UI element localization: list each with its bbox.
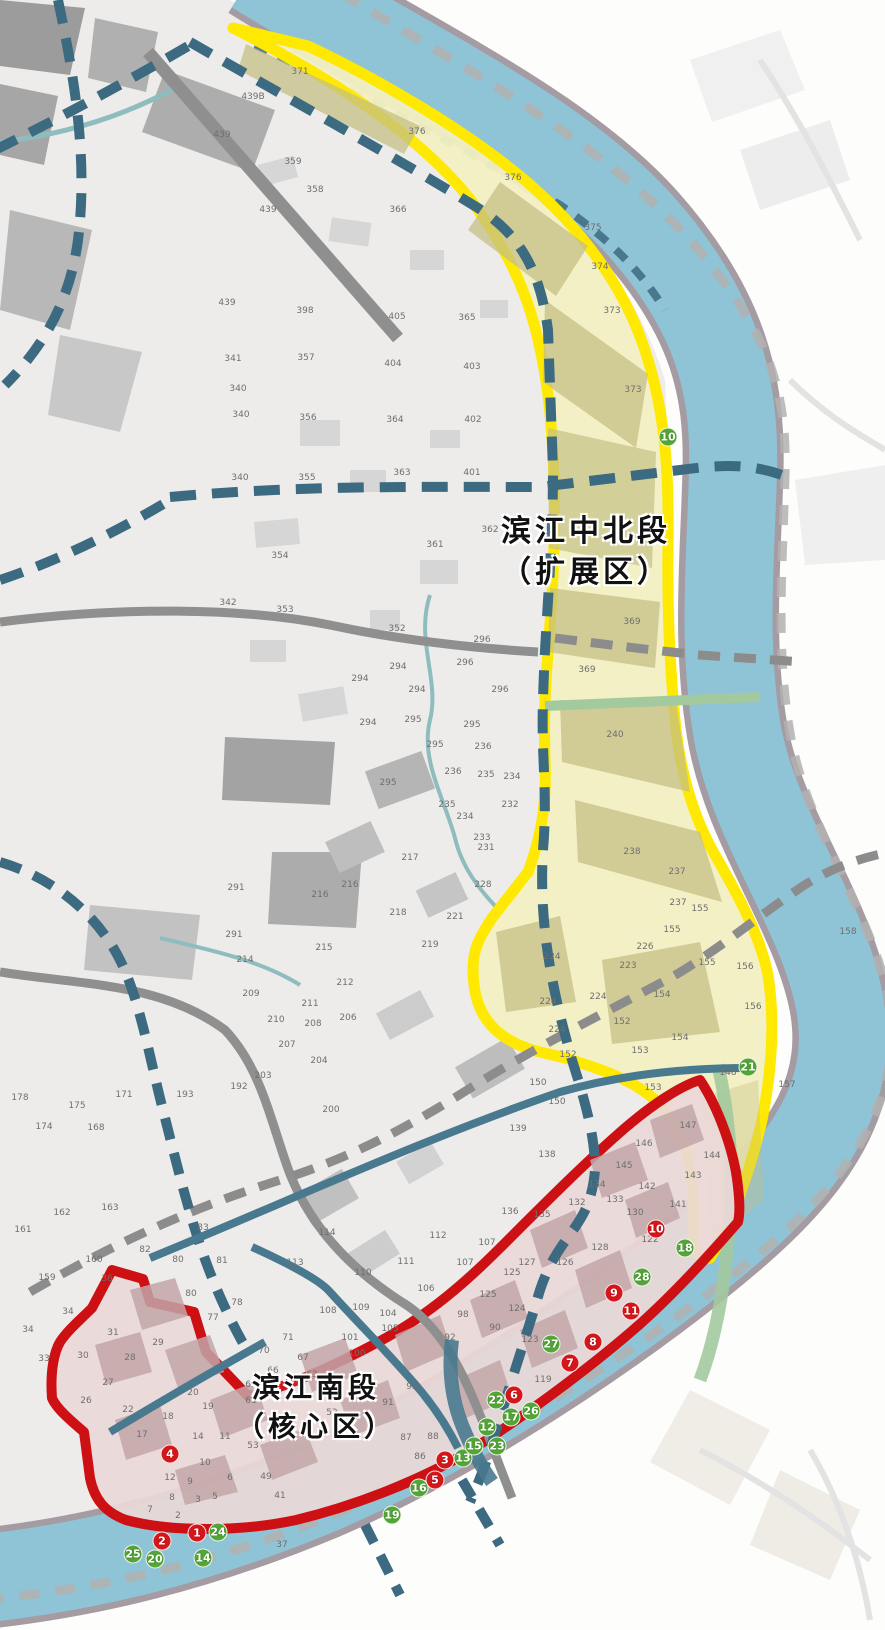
marker-green-17[interactable]: 17 [502,1408,521,1427]
markers-layer: 1234567891011101213141516171819202122232… [0,0,885,1630]
marker-red-8[interactable]: 8 [584,1333,603,1352]
marker-green-25[interactable]: 25 [124,1545,143,1564]
marker-green-23[interactable]: 23 [488,1437,507,1456]
marker-green-21[interactable]: 21 [739,1058,758,1077]
marker-red-2[interactable]: 2 [153,1532,172,1551]
marker-green-15[interactable]: 15 [465,1437,484,1456]
marker-red-1[interactable]: 1 [188,1524,207,1543]
marker-green-28[interactable]: 28 [633,1268,652,1287]
marker-red-7[interactable]: 7 [561,1354,580,1373]
marker-green-10[interactable]: 10 [659,428,678,447]
marker-red-11[interactable]: 11 [622,1302,641,1321]
marker-green-24[interactable]: 24 [209,1523,228,1542]
marker-red-10[interactable]: 10 [647,1220,666,1239]
marker-red-3[interactable]: 3 [436,1451,455,1470]
marker-green-27[interactable]: 27 [542,1335,561,1354]
marker-red-9[interactable]: 9 [605,1284,624,1303]
marker-green-19[interactable]: 19 [383,1506,402,1525]
marker-green-18[interactable]: 18 [676,1239,695,1258]
marker-green-22[interactable]: 22 [487,1391,506,1410]
marker-red-4[interactable]: 4 [161,1445,180,1464]
marker-red-6[interactable]: 6 [505,1386,524,1405]
marker-green-20[interactable]: 20 [146,1550,165,1569]
map-canvas: 439B439359358439366376376375374373373371… [0,0,885,1630]
marker-green-12[interactable]: 12 [478,1418,497,1437]
marker-green-16[interactable]: 16 [410,1479,429,1498]
marker-green-14[interactable]: 14 [194,1549,213,1568]
marker-green-26[interactable]: 26 [522,1402,541,1421]
